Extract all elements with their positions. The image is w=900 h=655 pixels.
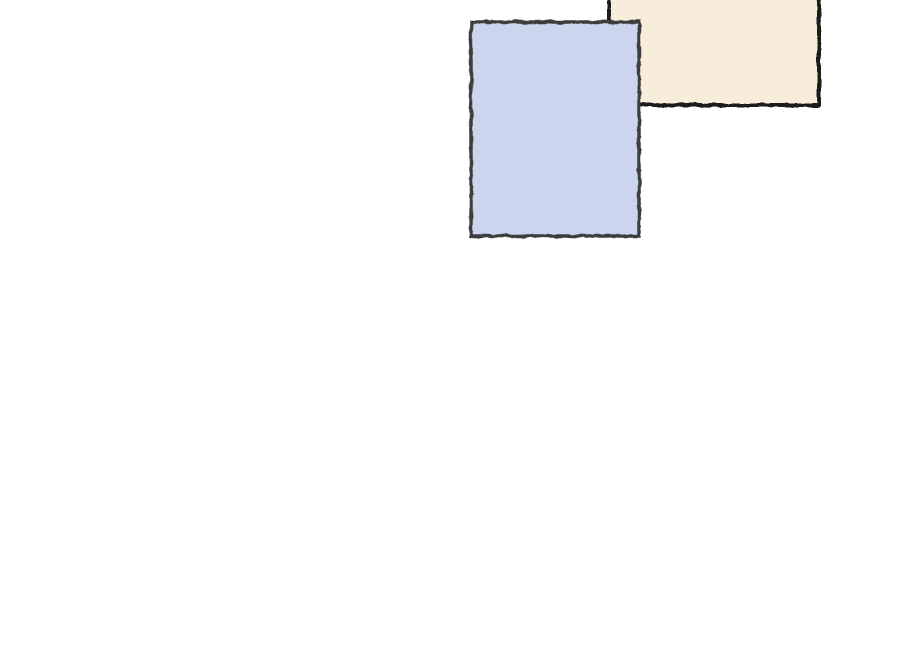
blue-rectangle-shape	[471, 22, 639, 236]
drawing-canvas	[0, 0, 900, 655]
shapes-layer	[0, 0, 900, 655]
